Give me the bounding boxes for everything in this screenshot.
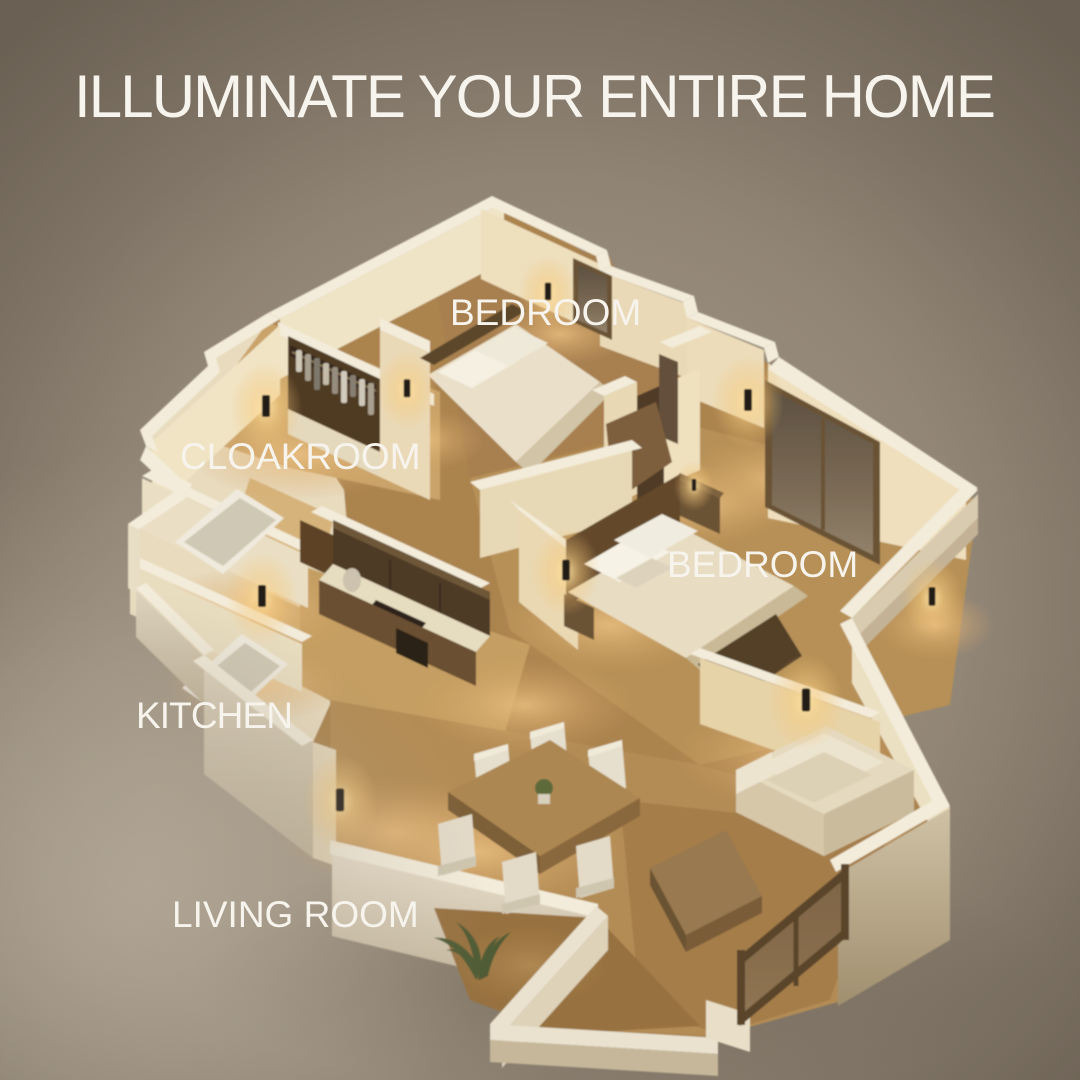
svg-text:BEDROOM: BEDROOM <box>450 292 641 333</box>
svg-text:BEDROOM: BEDROOM <box>667 544 858 585</box>
svg-text:CLOAKROOM: CLOAKROOM <box>180 436 421 477</box>
svg-text:LIVING ROOM: LIVING ROOM <box>172 894 419 935</box>
svg-text:ILLUMINATE YOUR ENTIRE HOME: ILLUMINATE YOUR ENTIRE HOME <box>74 63 994 130</box>
svg-text:KITCHEN: KITCHEN <box>136 695 292 736</box>
